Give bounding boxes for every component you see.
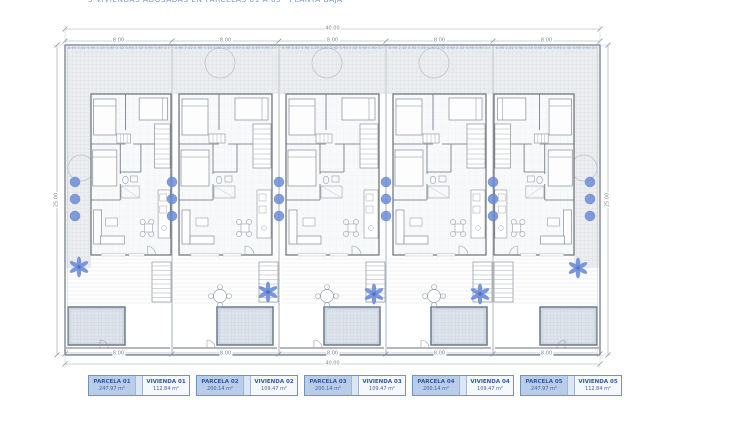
house-label-2-title: VIVIENDA 02 <box>254 379 293 386</box>
label-gap-2 <box>243 376 251 395</box>
unit-2-plan <box>173 46 278 348</box>
label-group-2: PARCELA 02200.14 m²VIVIENDA 02109.47 m² <box>196 375 298 396</box>
parcel-label-5-title: PARCELA 05 <box>525 379 562 386</box>
dimension-bottom-segment-5: 8.00 <box>540 352 553 357</box>
house-label-1: VIVIENDA 01112.84 m² <box>143 376 189 395</box>
micro-dimension-row-1: 0.90 2.42 0.90 1.20 0.90 2.42 0.90 2.42 … <box>68 46 169 51</box>
dimension-top-segment-2: 8.00 <box>219 39 232 44</box>
parcel-label-3: PARCELA 03200.14 m² <box>305 376 351 395</box>
label-gap-4 <box>459 376 467 395</box>
drawing-title-text: 5 VIVIENDAS ADOSADAS EN PARCELAS 01 A 05… <box>88 0 348 4</box>
house-label-4-title: VIVIENDA 04 <box>470 379 509 386</box>
dimension-top-total: 40.00 <box>324 27 340 32</box>
dimension-bottom-segment-2: 8.00 <box>219 352 232 357</box>
label-gap-3 <box>351 376 359 395</box>
unit-3-plan <box>280 46 385 348</box>
dimension-top-segment-1: 8.00 <box>112 39 125 44</box>
dimension-left-side: 25.00 <box>55 192 60 208</box>
dimension-top-segment-4: 8.00 <box>433 39 446 44</box>
house-label-5-title: VIVIENDA 05 <box>578 379 617 386</box>
label-group-4: PARCELA 04200.14 m²VIVIENDA 04109.47 m² <box>412 375 514 396</box>
house-label-3: VIVIENDA 03109.47 m² <box>359 376 405 395</box>
parcel-label-5: PARCELA 05247.97 m² <box>521 376 567 395</box>
drawing-title: 5 VIVIENDAS ADOSADAS EN PARCELAS 01 A 05… <box>88 0 348 5</box>
label-group-1: PARCELA 01247.97 m²VIVIENDA 01112.84 m² <box>88 375 190 396</box>
parcel-label-4-title: PARCELA 04 <box>417 379 454 386</box>
floor-plan-canvas: 5 VIVIENDAS ADOSADAS EN PARCELAS 01 A 05… <box>0 0 756 443</box>
parcel-label-3-title: PARCELA 03 <box>309 379 346 386</box>
dimension-bottom-segment-1: 8.00 <box>112 352 125 357</box>
parcel-label-2-area: 200.14 m² <box>207 386 233 393</box>
micro-dimension-row-2: 0.90 2.42 0.90 1.20 0.90 2.42 0.90 2.42 … <box>175 46 276 51</box>
parcel-label-2-title: PARCELA 02 <box>201 379 238 386</box>
label-gap-5 <box>567 376 575 395</box>
parcel-label-1-area: 247.97 m² <box>99 386 125 393</box>
micro-dimension-row-3: 0.90 2.42 0.90 1.20 0.90 2.42 0.90 2.42 … <box>282 46 383 51</box>
label-gap-1 <box>135 376 143 395</box>
parcel-label-3-area: 200.14 m² <box>315 386 341 393</box>
house-label-4: VIVIENDA 04109.47 m² <box>467 376 513 395</box>
parcel-label-2: PARCELA 02200.14 m² <box>197 376 243 395</box>
house-label-1-area: 112.84 m² <box>153 386 179 393</box>
dimension-bottom-segment-4: 8.00 <box>433 352 446 357</box>
house-label-2-area: 109.47 m² <box>261 386 287 393</box>
dimension-bottom-total: 40.00 <box>324 362 340 367</box>
parcel-label-4: PARCELA 04200.14 m² <box>413 376 459 395</box>
micro-dimension-row-5: 0.90 2.42 0.90 1.20 0.90 2.42 0.90 2.42 … <box>496 46 597 51</box>
parcel-label-1: PARCELA 01247.97 m² <box>89 376 135 395</box>
house-label-4-area: 109.47 m² <box>477 386 503 393</box>
unit-1-plan <box>66 46 171 348</box>
dimension-top-segment-3: 8.00 <box>326 39 339 44</box>
parcel-label-1-title: PARCELA 01 <box>93 379 130 386</box>
dimension-top-segment-5: 8.00 <box>540 39 553 44</box>
parcel-label-5-area: 247.97 m² <box>531 386 557 393</box>
dimension-right-side: 25.00 <box>606 192 611 208</box>
label-group-3: PARCELA 03200.14 m²VIVIENDA 03109.47 m² <box>304 375 406 396</box>
house-label-5: VIVIENDA 05112.84 m² <box>575 376 621 395</box>
unit-5-plan <box>494 46 599 348</box>
label-group-5: PARCELA 05247.97 m²VIVIENDA 05112.84 m² <box>520 375 622 396</box>
house-label-2: VIVIENDA 02109.47 m² <box>251 376 297 395</box>
parcel-label-4-area: 200.14 m² <box>423 386 449 393</box>
house-label-5-area: 112.84 m² <box>585 386 611 393</box>
micro-dimension-row-4: 0.90 2.42 0.90 1.20 0.90 2.42 0.90 2.42 … <box>389 46 490 51</box>
unit-4-plan <box>387 46 492 348</box>
dimension-bottom-segment-3: 8.00 <box>326 352 339 357</box>
house-label-3-title: VIVIENDA 03 <box>362 379 401 386</box>
house-label-1-title: VIVIENDA 01 <box>146 379 185 386</box>
house-label-3-area: 109.47 m² <box>369 386 395 393</box>
